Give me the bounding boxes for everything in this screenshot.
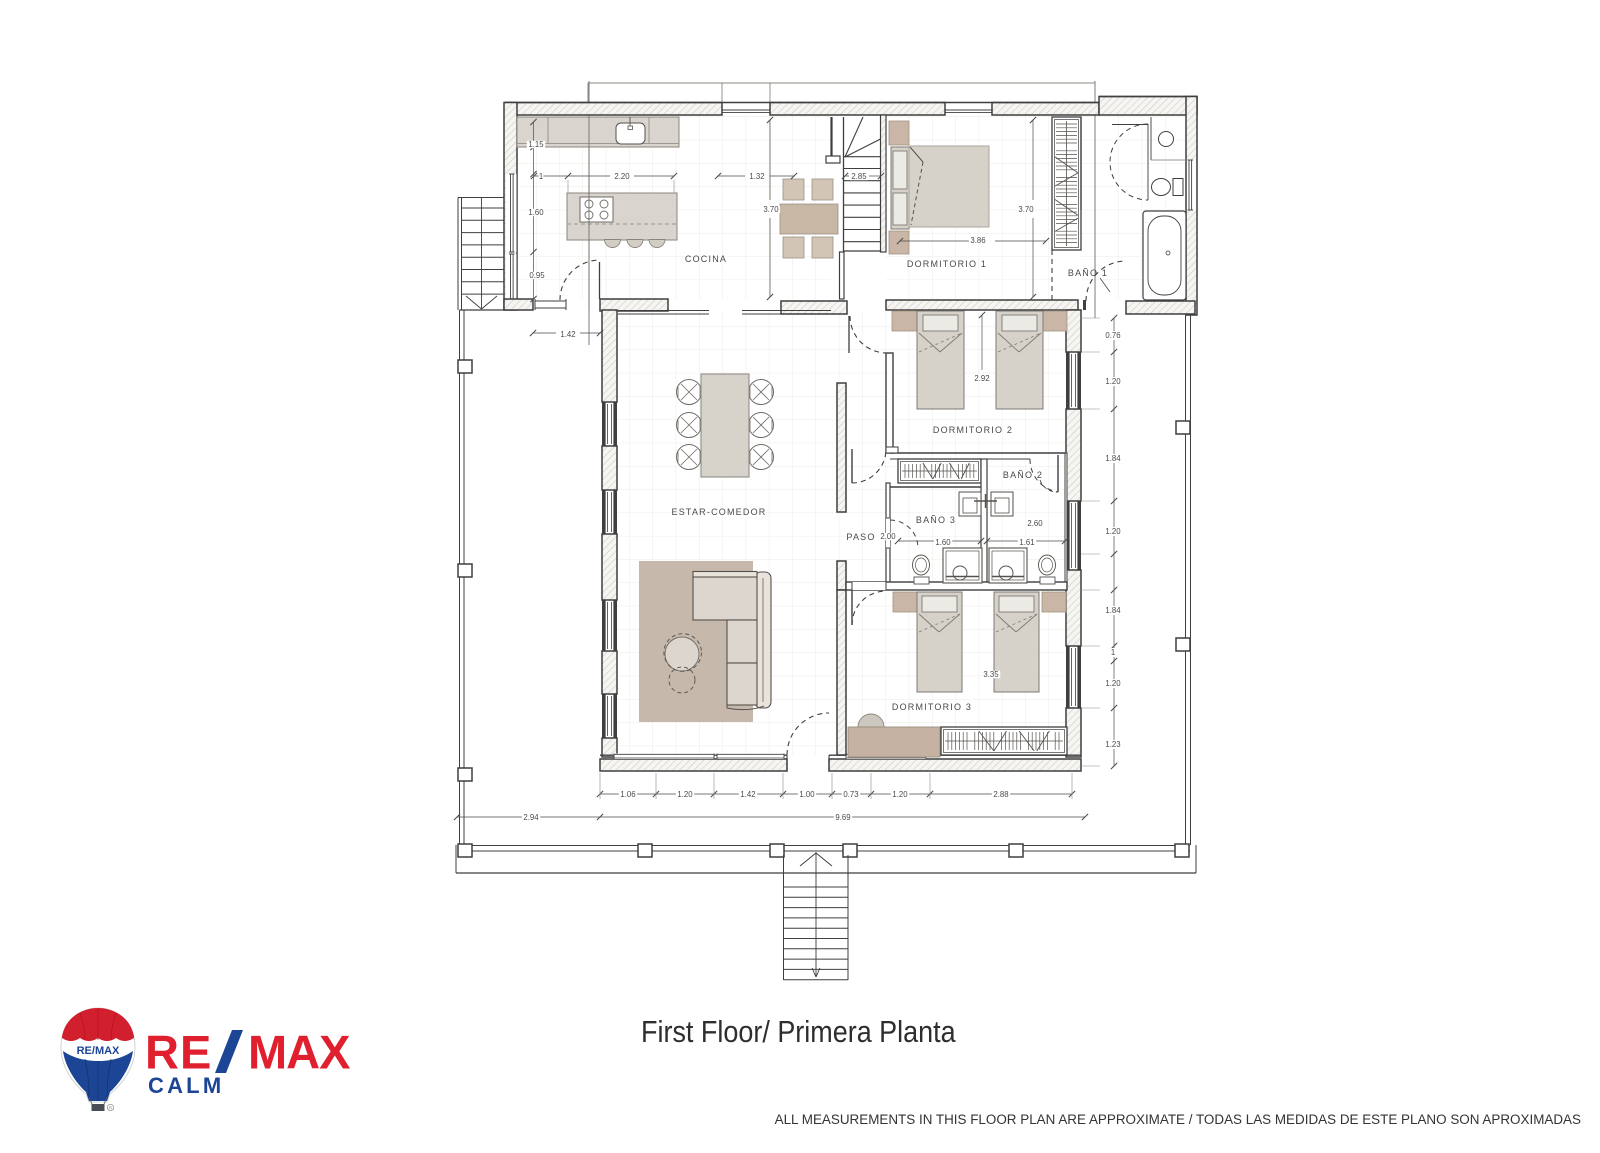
svg-text:1.60: 1.60: [528, 208, 544, 217]
svg-text:First Floor/ Primera Planta: First Floor/ Primera Planta: [641, 1015, 956, 1049]
svg-text:1.42: 1.42: [560, 330, 575, 339]
svg-text:DORMITORIO 3: DORMITORIO 3: [892, 702, 972, 712]
svg-text:DORMITORIO 1: DORMITORIO 1: [907, 259, 987, 269]
svg-text:MAX: MAX: [248, 1026, 350, 1079]
svg-text:1.06: 1.06: [620, 790, 635, 799]
svg-text:1.20: 1.20: [1105, 377, 1121, 386]
svg-text:1.15: 1.15: [528, 140, 544, 149]
svg-text:2.20: 2.20: [614, 172, 630, 181]
svg-text:BAÑO 3: BAÑO 3: [916, 515, 956, 525]
svg-text:3.70: 3.70: [763, 205, 779, 214]
svg-text:2.60: 2.60: [1027, 519, 1043, 528]
svg-text:BAÑO 2: BAÑO 2: [1003, 470, 1043, 480]
svg-text:1.20: 1.20: [1105, 679, 1121, 688]
svg-text:3.70: 3.70: [1018, 205, 1034, 214]
svg-text:COCINA: COCINA: [685, 254, 727, 264]
svg-text:1.20: 1.20: [892, 790, 908, 799]
svg-text:1: 1: [1111, 648, 1115, 657]
svg-text:9.69: 9.69: [835, 813, 850, 822]
svg-text:3.86: 3.86: [970, 236, 985, 245]
svg-text:2.88: 2.88: [993, 790, 1008, 799]
svg-text:1.20: 1.20: [1105, 527, 1121, 536]
svg-text:1: 1: [539, 172, 543, 181]
svg-text:1.20: 1.20: [677, 790, 693, 799]
svg-text:1.60: 1.60: [935, 538, 951, 547]
svg-text:1.42: 1.42: [740, 790, 755, 799]
svg-text:1.84: 1.84: [1105, 454, 1121, 463]
svg-text:0.76: 0.76: [1105, 331, 1120, 340]
svg-text:CALM: CALM: [148, 1073, 224, 1098]
svg-text:ALL MEASUREMENTS IN THIS FLOOR: ALL MEASUREMENTS IN THIS FLOOR PLAN ARE …: [775, 1112, 1581, 1127]
svg-text:DORMITORIO 2: DORMITORIO 2: [933, 425, 1013, 435]
svg-text:BAÑO 1: BAÑO 1: [1068, 268, 1108, 278]
svg-text:1.23: 1.23: [1105, 740, 1120, 749]
svg-text:PASO: PASO: [846, 532, 875, 542]
svg-text:RE: RE: [145, 1026, 212, 1079]
svg-text:RE/MAX: RE/MAX: [77, 1045, 120, 1057]
svg-text:1.00: 1.00: [799, 790, 815, 799]
svg-text:1.84: 1.84: [1105, 606, 1121, 615]
svg-text:1.32: 1.32: [749, 172, 764, 181]
svg-text:2.94: 2.94: [523, 813, 539, 822]
svg-text:2.92: 2.92: [974, 374, 989, 383]
svg-text:2.00: 2.00: [880, 532, 896, 541]
svg-text:0.95: 0.95: [529, 271, 545, 280]
svg-text:3.35: 3.35: [983, 670, 999, 679]
svg-text:ESTAR-COMEDOR: ESTAR-COMEDOR: [672, 507, 767, 517]
svg-text:0.73: 0.73: [843, 790, 858, 799]
svg-text:1.61: 1.61: [1019, 538, 1034, 547]
svg-text:2.85: 2.85: [851, 172, 867, 181]
